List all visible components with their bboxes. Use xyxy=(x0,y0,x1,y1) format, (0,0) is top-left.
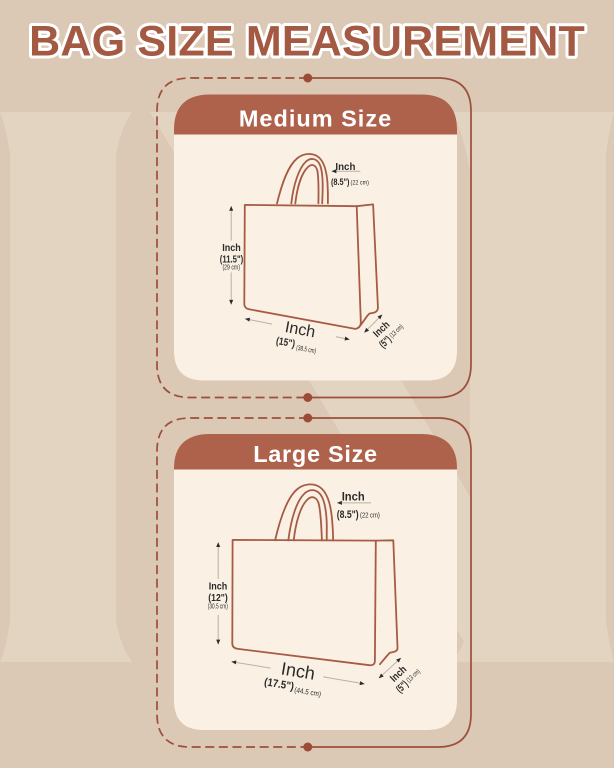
svg-text:(12"): (12") xyxy=(208,592,228,604)
svg-text:Medium Size: Medium Size xyxy=(239,105,392,131)
svg-text:(22 cm): (22 cm) xyxy=(360,510,380,519)
svg-text:Inch: Inch xyxy=(342,492,365,504)
svg-text:Inch: Inch xyxy=(222,242,241,254)
svg-text:(30.5 cm): (30.5 cm) xyxy=(208,603,228,610)
svg-text:(29 cm): (29 cm) xyxy=(222,264,240,271)
svg-text:(22 cm): (22 cm) xyxy=(351,180,370,187)
svg-text:(8.5"): (8.5") xyxy=(331,177,350,188)
svg-text:Large Size: Large Size xyxy=(253,441,378,467)
svg-text:Inch: Inch xyxy=(209,581,228,593)
svg-text:(8.5"): (8.5") xyxy=(337,509,359,521)
svg-text:BAG SIZE MEASUREMENT: BAG SIZE MEASUREMENT xyxy=(29,18,585,66)
svg-text:Inch: Inch xyxy=(335,161,355,173)
